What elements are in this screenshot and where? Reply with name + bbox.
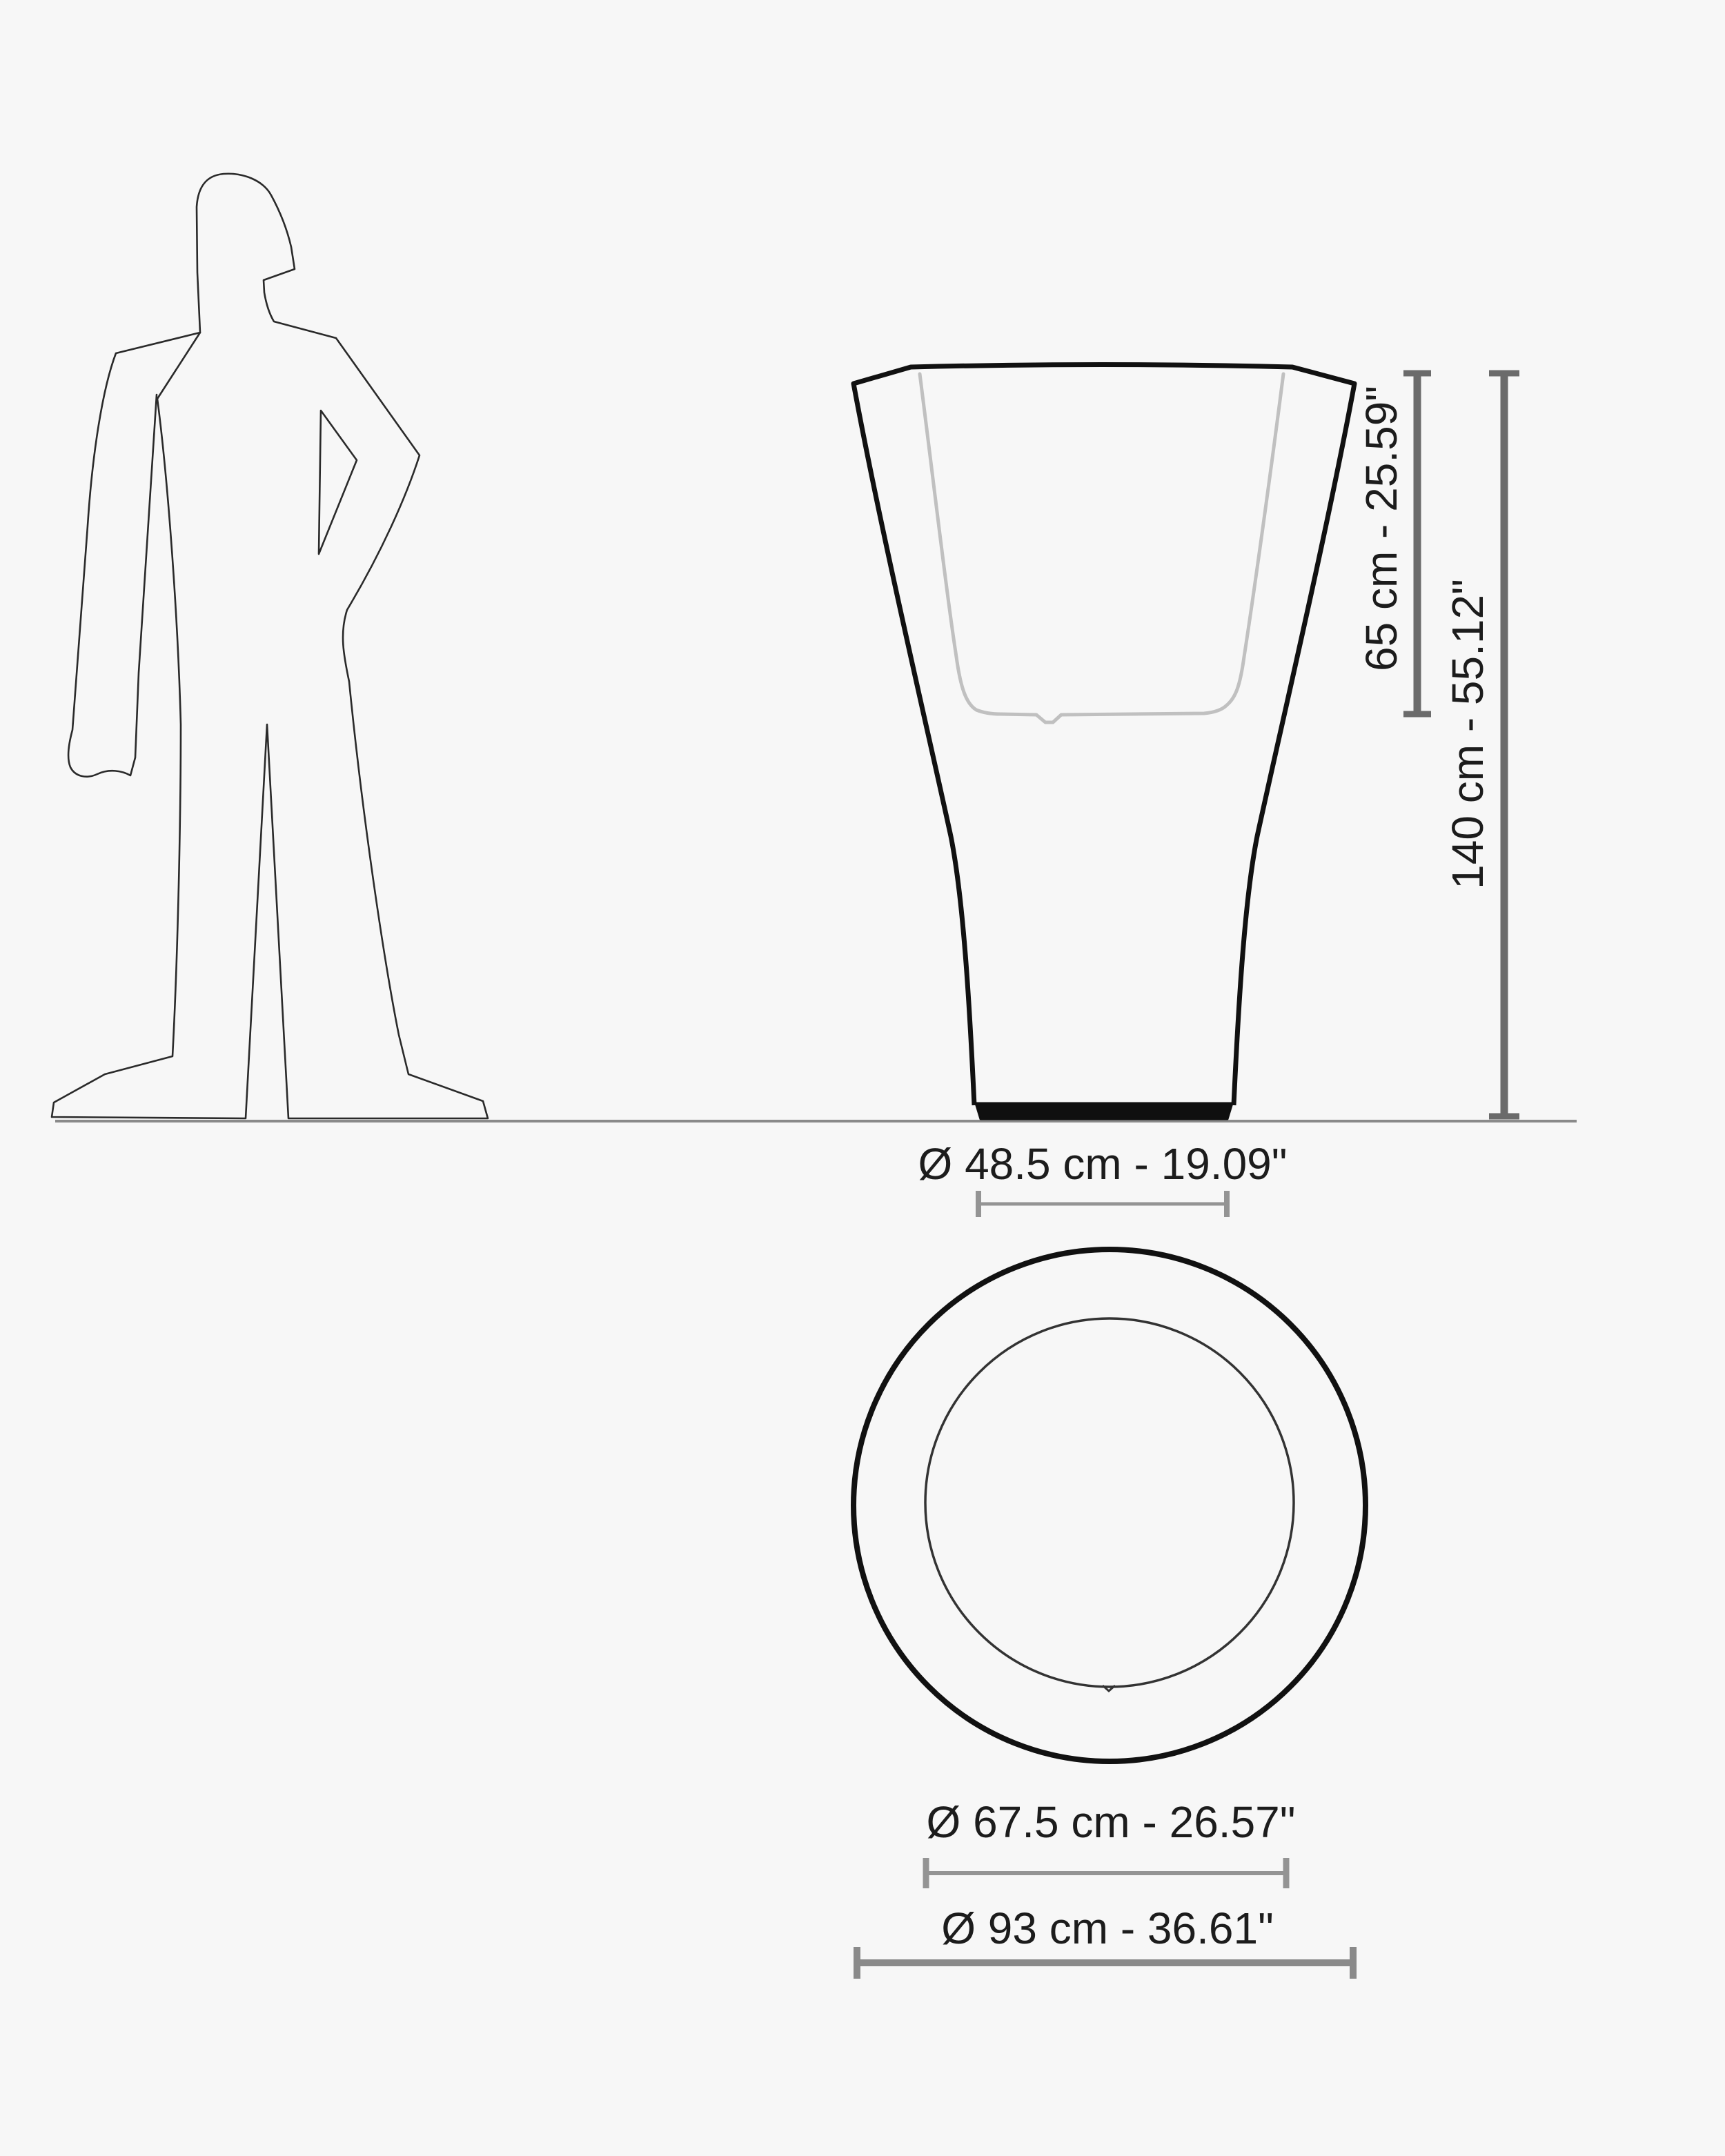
human-silhouette: [52, 174, 488, 1118]
outer-rim-circle: [854, 1249, 1366, 1761]
planter-base: [976, 1103, 1232, 1119]
inner-rim-circle: [925, 1318, 1294, 1687]
planter-outline: [854, 365, 1354, 1106]
dimension-inner-height: 65 cm - 25.59": [1357, 373, 1431, 714]
base-diameter-label: Ø 48.5 cm - 19.09": [918, 1139, 1288, 1189]
hip-triangle-cutout: [319, 411, 357, 554]
inner-liner-profile: [920, 374, 1283, 722]
dimension-base-diameter: Ø 48.5 cm - 19.09": [918, 1139, 1288, 1217]
outer-diameter-label: Ø 93 cm - 36.61": [941, 1903, 1274, 1953]
total-height-label: 140 cm - 55.12": [1443, 579, 1492, 889]
dimension-inner-diameter: Ø 67.5 cm - 26.57": [926, 1797, 1295, 1888]
dimension-total-height: 140 cm - 55.12": [1443, 373, 1519, 1116]
inner-height-label: 65 cm - 25.59": [1357, 386, 1406, 671]
planter-side-view: [854, 365, 1354, 1120]
dimension-outer-diameter: Ø 93 cm - 36.61": [857, 1903, 1353, 1979]
planter-top-view: [854, 1249, 1366, 1761]
inner-diameter-label: Ø 67.5 cm - 26.57": [927, 1797, 1296, 1847]
dimension-diagram: 65 cm - 25.59" 140 cm - 55.12" Ø 48.5 cm…: [0, 0, 1725, 2156]
